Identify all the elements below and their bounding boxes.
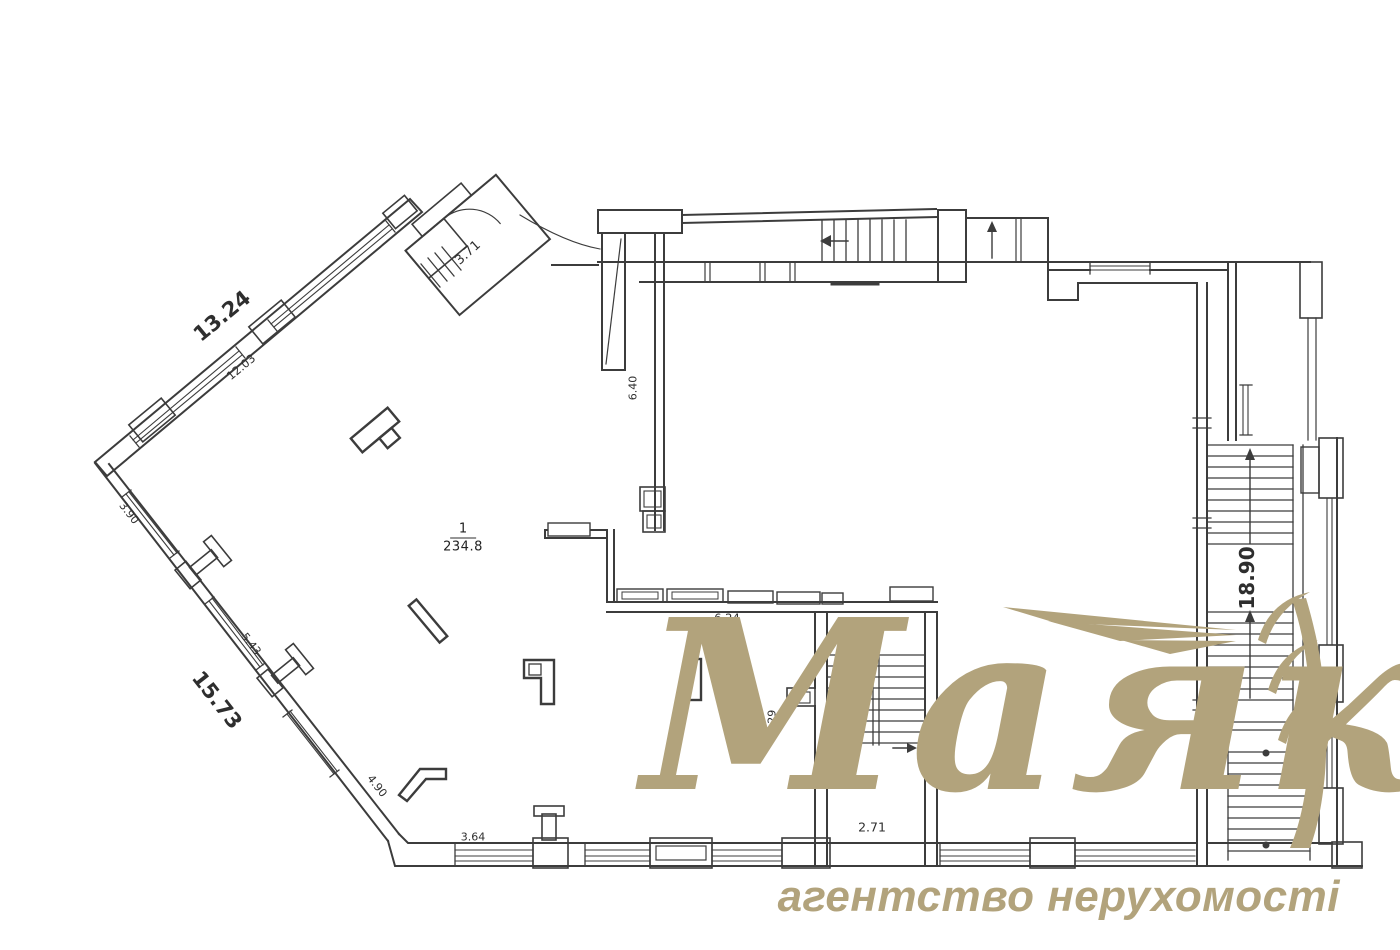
watermark-tagline: агентство нерухомості (778, 872, 1340, 922)
floorplan-page: 13.24 12.03 3.90 5.43 15.73 4.90 3.64 3.… (0, 0, 1400, 950)
brand-watermark: Маяк (642, 588, 1400, 824)
